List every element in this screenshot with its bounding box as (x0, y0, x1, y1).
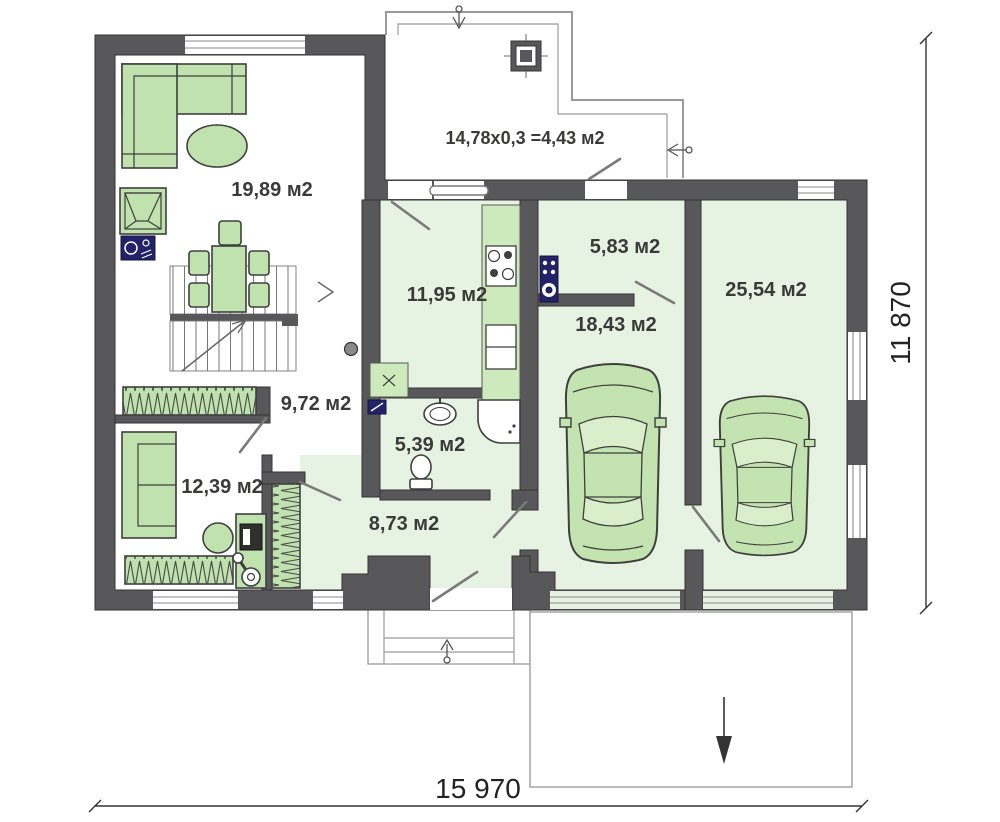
chimney (504, 34, 548, 78)
staircase (170, 266, 358, 371)
label-kitchen: 11,95 м2 (407, 284, 487, 306)
wall-kitchen-west (362, 200, 380, 497)
window-right-2 (848, 465, 866, 538)
kitchen-counter (482, 205, 520, 400)
wall-stub-between-garages (685, 550, 703, 610)
label-boiler-room: 5,83 м2 (590, 236, 660, 258)
label-garage-large: 25,54 м2 (725, 279, 807, 301)
window-right-1 (848, 332, 866, 400)
window-garage-top (798, 181, 834, 199)
washing-machine (370, 363, 408, 397)
car-garage-small (560, 364, 666, 563)
boiler-unit (540, 256, 558, 302)
wardrobe-bedroom (125, 556, 233, 584)
stair-direction-chevron (318, 282, 333, 302)
door-opening-boiler-terrace (585, 181, 627, 199)
label-bathroom: 5,39 м2 (395, 434, 465, 456)
chair (219, 221, 241, 245)
garage-door-large (703, 591, 833, 609)
chair (189, 251, 209, 275)
dining-set (189, 221, 269, 312)
terrace-outline (386, 6, 692, 178)
stair-newel-post (345, 343, 358, 356)
window-bedroom-bottom (153, 591, 238, 609)
label-garage-small: 18,43 м2 (575, 314, 657, 336)
door-opening-entrance (430, 588, 512, 610)
slider-door-terrace (430, 181, 488, 199)
window-corridor-bottom (313, 591, 343, 609)
window-living-top (185, 36, 305, 54)
pouf (203, 523, 233, 553)
label-hall: 9,72 м2 (281, 393, 351, 415)
toilet (410, 455, 432, 489)
entry-marker-right (668, 144, 692, 156)
coffee-table (187, 125, 247, 167)
electrical-panel (368, 400, 386, 414)
entry-marker-top (453, 6, 465, 28)
dining-table (212, 246, 246, 312)
label-living-room: 19,89 м2 (231, 179, 313, 201)
kitchen-cabinet (486, 325, 516, 369)
sofa (122, 432, 176, 538)
wardrobe-under-stairs (123, 387, 256, 415)
chair (249, 251, 269, 275)
wall-bathroom-corner (512, 490, 538, 510)
wardrobe-corridor (272, 484, 300, 588)
label-corridor: 8,73 м2 (369, 513, 439, 535)
wall-kitchen-east (520, 200, 538, 510)
floor-plan-canvas: 19,89 м2 14,78x0,3 =4,43 м2 11,95 м2 5,8… (0, 0, 1000, 822)
garage-door-small (550, 591, 680, 609)
wall-bathroom-south (380, 490, 490, 500)
car-garage-large (714, 396, 815, 555)
floor-plan-drawing: 19,89 м2 14,78x0,3 =4,43 м2 11,95 м2 5,8… (0, 0, 1000, 822)
driveway (530, 612, 852, 787)
cooktop (486, 246, 516, 286)
label-terrace: 14,78x0,3 =4,43 м2 (446, 128, 605, 148)
fireplace (120, 188, 166, 234)
chair (249, 283, 269, 307)
door-opening-kitchen (388, 181, 432, 199)
stair-rail (170, 314, 298, 321)
dimension-width-text: 15 970 (435, 773, 521, 804)
wall-stub-corridor (262, 472, 305, 484)
chair (189, 283, 209, 307)
dimension-height-text: 11 870 (885, 281, 916, 365)
label-bedroom: 12,39 м2 (181, 476, 263, 498)
wall-between-garages (685, 200, 701, 505)
wall-bedroom-north (115, 415, 270, 423)
dimension-right: 11 870 (885, 32, 932, 614)
entrance-porch (368, 607, 530, 664)
door-leaf-boiler-terrace (589, 159, 620, 179)
wall-cap-wardrobe (256, 387, 270, 415)
stove-icon (121, 236, 155, 260)
